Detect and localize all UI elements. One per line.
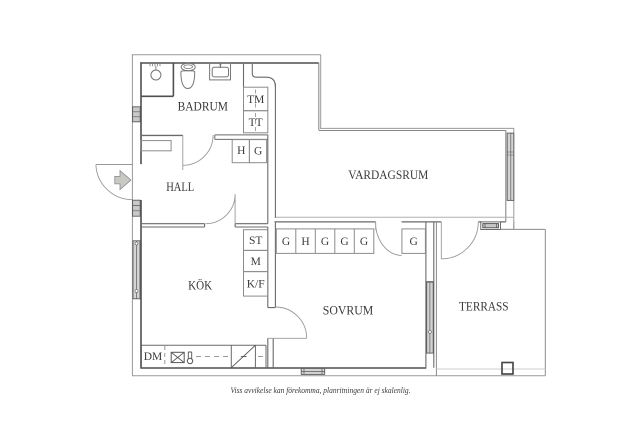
- svg-text:TM: TM: [247, 94, 264, 106]
- svg-text:DM: DM: [144, 351, 163, 363]
- svg-text:H: H: [237, 145, 245, 157]
- svg-text:TT: TT: [249, 117, 263, 129]
- svg-text:SOVRUM: SOVRUM: [323, 302, 374, 317]
- svg-text:TERRASS: TERRASS: [459, 298, 509, 313]
- svg-text:G: G: [360, 236, 368, 248]
- svg-text:M: M: [251, 256, 261, 268]
- svg-text:H: H: [301, 236, 309, 248]
- svg-text:HALL: HALL: [166, 179, 194, 194]
- svg-text:BADRUM: BADRUM: [178, 98, 229, 113]
- svg-text:G: G: [340, 236, 348, 248]
- svg-text:ST: ST: [249, 235, 262, 247]
- svg-text:G: G: [254, 145, 262, 157]
- svg-text:G: G: [409, 236, 417, 248]
- svg-text:KÖK: KÖK: [188, 278, 213, 293]
- svg-text:G: G: [321, 236, 329, 248]
- svg-text:VARDAGSRUM: VARDAGSRUM: [348, 167, 428, 182]
- svg-text:Viss avvikelse kan förekomma,: Viss avvikelse kan förekomma, planritnin…: [231, 386, 411, 395]
- svg-text:K/F: K/F: [247, 279, 265, 291]
- svg-text:G: G: [282, 236, 290, 248]
